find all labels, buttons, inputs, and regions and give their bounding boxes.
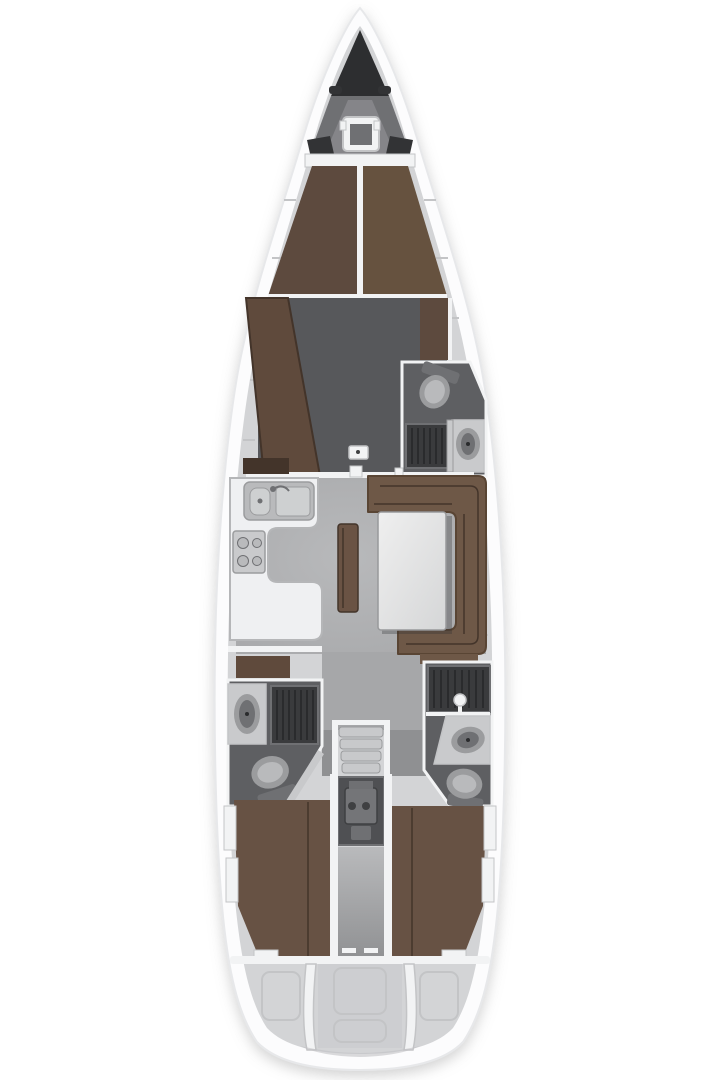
v-berth-footboard <box>268 294 447 298</box>
sink-round-drain <box>258 499 263 504</box>
floor-hatch-latch <box>356 450 360 454</box>
yacht-floorplan-canvas <box>0 0 720 1080</box>
engine-top-unit <box>349 781 373 789</box>
transom-bulkhead <box>230 956 490 964</box>
burner <box>238 538 249 549</box>
forward-head-basin-drain <box>466 442 470 446</box>
bench-seat <box>338 524 358 612</box>
port-head-grate-lines <box>277 690 313 740</box>
bow-cleat-port <box>329 86 342 94</box>
aft-walkway <box>338 847 384 961</box>
stair-rail-starboard <box>384 724 390 776</box>
stern-center-floor <box>318 964 402 1048</box>
side-locker <box>484 806 496 850</box>
forward-head <box>402 360 486 476</box>
door-post <box>395 468 403 476</box>
shower-head <box>454 694 466 706</box>
galley-aft-wall <box>228 646 322 652</box>
anchor-windlass <box>340 117 380 151</box>
burner <box>253 557 262 566</box>
mast-post <box>350 466 362 477</box>
stair-side-floor-starboard <box>390 730 426 776</box>
engine-pulley <box>348 802 356 810</box>
aft-bulkhead-port <box>330 774 338 962</box>
walkway-sill <box>364 948 378 953</box>
port-head-basin-drain <box>245 712 249 716</box>
wardrobe-divider <box>448 298 452 360</box>
stair-step <box>342 763 380 773</box>
sink-rect <box>276 487 310 516</box>
stern-divider-port <box>304 964 317 1050</box>
engine-pulley <box>362 802 370 810</box>
port-head-counter <box>236 656 290 678</box>
burner <box>238 556 249 567</box>
bulkhead-trim-port <box>243 458 289 474</box>
burner <box>253 539 262 548</box>
bow-cleat-starboard <box>378 86 391 94</box>
aft-bulkhead-starboard <box>384 774 392 962</box>
wardrobe <box>420 298 448 360</box>
v-berth-seam <box>357 166 363 296</box>
side-locker <box>224 806 236 850</box>
engine-gearbox <box>351 826 371 840</box>
stove <box>233 531 265 573</box>
windlass-handle-starboard <box>374 121 380 130</box>
walkway-sill <box>342 948 356 953</box>
stair-step <box>339 727 383 737</box>
side-locker <box>226 858 238 902</box>
forward-head-door <box>447 420 453 472</box>
stair-step <box>341 751 381 761</box>
windlass-drum <box>350 124 372 145</box>
yacht-floorplan <box>0 0 720 1080</box>
windlass-handle-port <box>340 121 346 130</box>
side-locker <box>482 858 494 902</box>
saloon-table <box>378 512 446 630</box>
stair-top-rail <box>332 720 390 725</box>
midship-floor <box>322 652 426 730</box>
bow-bulkhead <box>305 154 415 167</box>
stern-divider-starboard <box>404 964 417 1050</box>
stair-step <box>340 739 382 749</box>
stair-rail-port <box>332 724 338 776</box>
